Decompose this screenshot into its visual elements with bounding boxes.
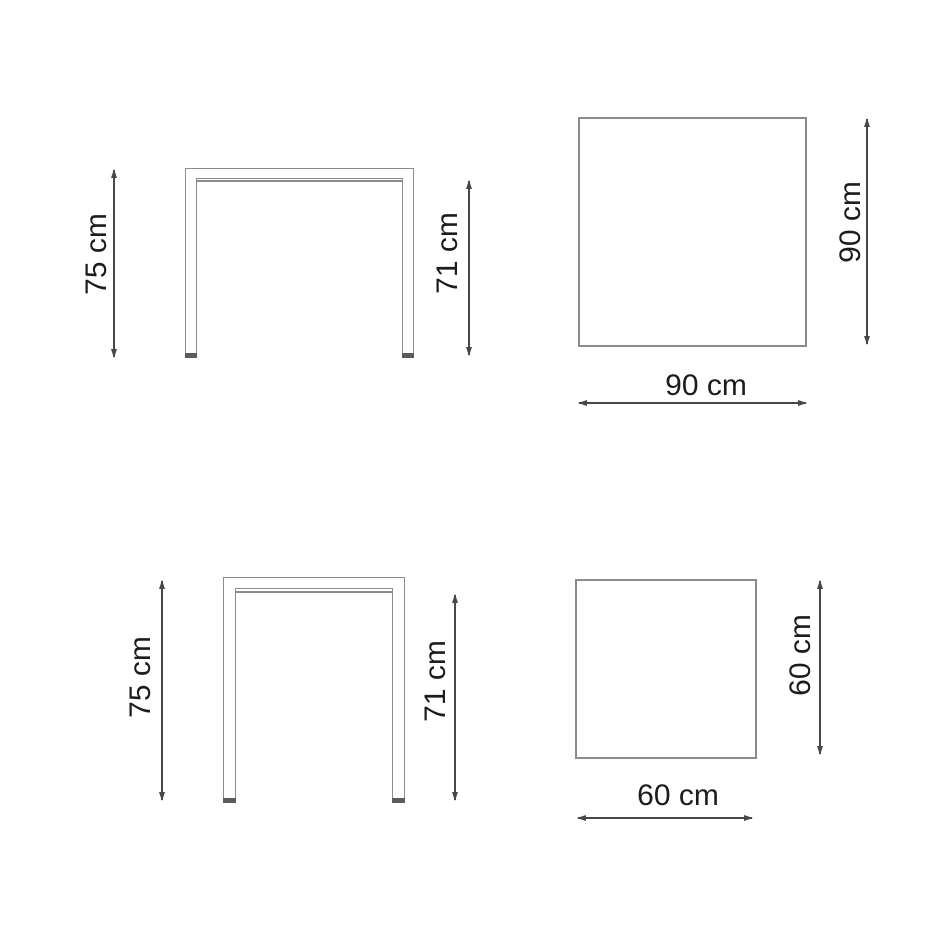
total-height-label: 75 cm — [126, 636, 156, 718]
dimension-line — [468, 181, 470, 355]
table-leg-left — [223, 588, 236, 803]
tabletop-outline — [578, 117, 807, 347]
dimension-line — [579, 402, 806, 404]
arrow-down-icon — [111, 349, 117, 358]
arrow-right-icon — [798, 400, 807, 406]
dimension-line — [578, 817, 752, 819]
leg-foot-right — [402, 353, 414, 358]
leg-foot-left — [223, 798, 236, 803]
under-top-height-label: 71 cm — [421, 640, 451, 722]
table-leg-right — [392, 588, 405, 803]
arrow-down-icon — [159, 792, 165, 801]
leg-foot-right — [392, 798, 405, 803]
under-top-height-label: 71 cm — [433, 212, 463, 294]
arrow-down-icon — [864, 336, 870, 345]
table-leg-right — [402, 178, 414, 358]
depth-dimension — [816, 580, 824, 755]
tabletop-underside-line — [185, 180, 414, 182]
width-dimension — [577, 814, 753, 822]
arrow-down-icon — [466, 347, 472, 356]
under-top-height-dimension — [451, 594, 459, 801]
tabletop-underside-line — [223, 591, 405, 593]
arrow-down-icon — [817, 746, 823, 755]
dimension-line — [454, 595, 456, 800]
tabletop — [223, 577, 405, 589]
under-top-height-dimension — [465, 180, 473, 356]
total-height-label: 75 cm — [82, 213, 112, 295]
width-label: 90 cm — [665, 371, 747, 401]
arrow-down-icon — [452, 792, 458, 801]
table-dimension-drawing: 75 cm 71 cm 90 cm 90 cm — [0, 0, 950, 950]
leg-foot-left — [185, 353, 197, 358]
arrow-right-icon — [744, 815, 753, 821]
tabletop — [185, 168, 414, 179]
dimension-line — [819, 581, 821, 754]
width-label: 60 cm — [637, 781, 719, 811]
depth-label: 60 cm — [786, 614, 816, 696]
table-leg-left — [185, 178, 197, 358]
dimension-line — [161, 581, 163, 800]
dimension-line — [113, 170, 115, 357]
tabletop-outline — [575, 579, 757, 759]
depth-label: 90 cm — [836, 181, 866, 263]
total-height-dimension — [158, 580, 166, 801]
